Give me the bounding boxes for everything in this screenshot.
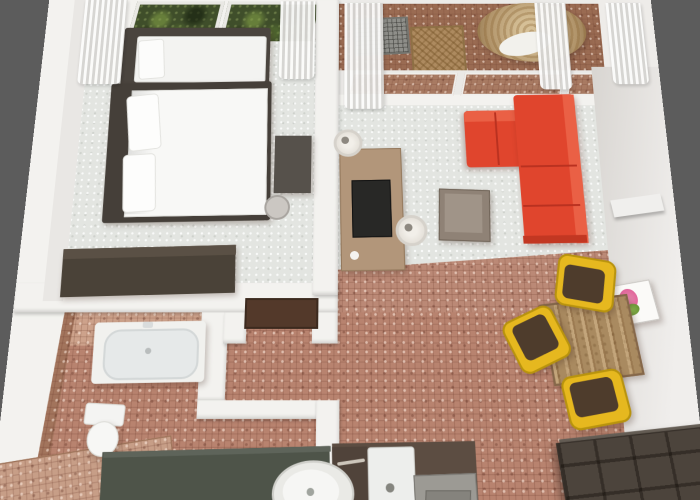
bathtub-basin [102, 328, 200, 380]
apartment-plan [0, 0, 700, 500]
floor-lamp-1-dot [341, 137, 349, 144]
double-bed-pillow-bottom [122, 153, 156, 213]
curtain-bedroom-right [279, 1, 316, 79]
vanity-sink-drain [307, 488, 315, 496]
kitchen-appliance [367, 446, 418, 500]
kitchen-sink-basin [423, 490, 471, 500]
floor-lamp-2-dot [404, 224, 412, 232]
tv-screen [351, 180, 392, 238]
curtain-bedroom-left [77, 0, 128, 84]
single-bed-pillow [138, 39, 165, 80]
kitchen-appliance-dot [386, 483, 395, 492]
wall-hall-bathroom [196, 400, 318, 419]
sofa-main-front-edge [523, 235, 587, 244]
curtain-living-left [344, 3, 384, 109]
floorplan-3d-render [0, 0, 700, 500]
dining-chair-1-seat [562, 264, 606, 305]
bathtub-faucet [143, 322, 154, 328]
tv-stand-mug [350, 251, 359, 260]
double-bed-pillow-top [126, 93, 162, 152]
floor-lamp-2-ring [395, 215, 427, 246]
side-table-top [445, 193, 483, 233]
balcony-wicker-box [410, 25, 467, 74]
entry-door [244, 298, 318, 329]
bedroom-desk [274, 136, 312, 193]
floor-lamp-1-ring [334, 129, 363, 156]
